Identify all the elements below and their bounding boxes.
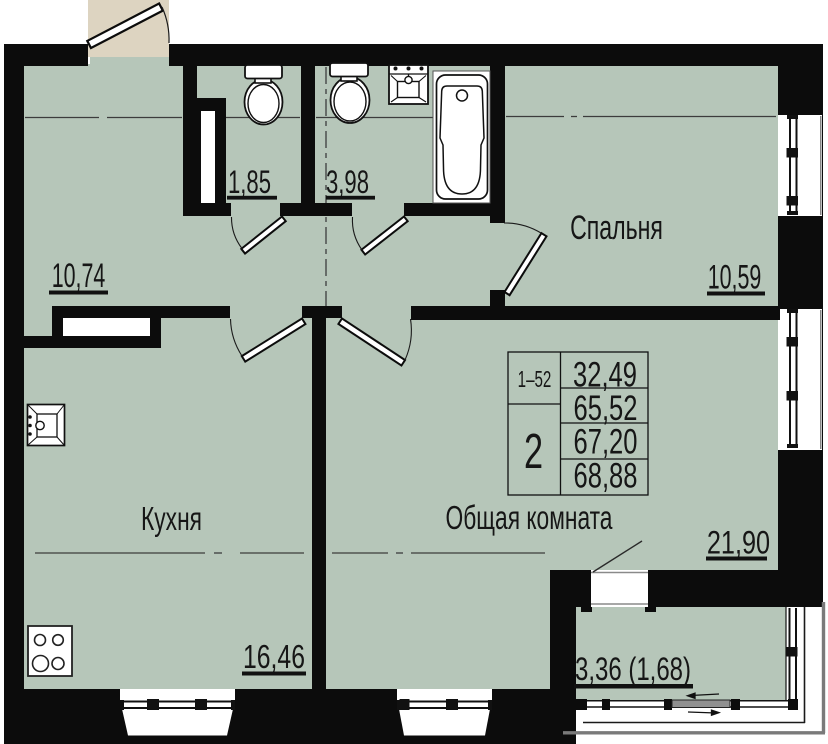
svg-text:3,36 (1,68): 3,36 (1,68) — [575, 651, 691, 687]
svg-text:Общая комната: Общая комната — [446, 500, 613, 537]
svg-text:3,98: 3,98 — [326, 164, 369, 200]
svg-text:1,85: 1,85 — [228, 164, 271, 200]
svg-text:Спальня: Спальня — [570, 210, 663, 247]
svg-text:Кухня: Кухня — [141, 501, 202, 538]
svg-text:1–52: 1–52 — [518, 367, 552, 393]
svg-text:68,88: 68,88 — [574, 457, 638, 496]
svg-text:16,46: 16,46 — [243, 640, 305, 676]
svg-text:10,74: 10,74 — [52, 257, 106, 295]
svg-text:21,90: 21,90 — [707, 526, 770, 562]
svg-text:2: 2 — [524, 424, 543, 478]
svg-text:10,59: 10,59 — [708, 259, 762, 297]
svg-text:67,20: 67,20 — [574, 423, 638, 462]
